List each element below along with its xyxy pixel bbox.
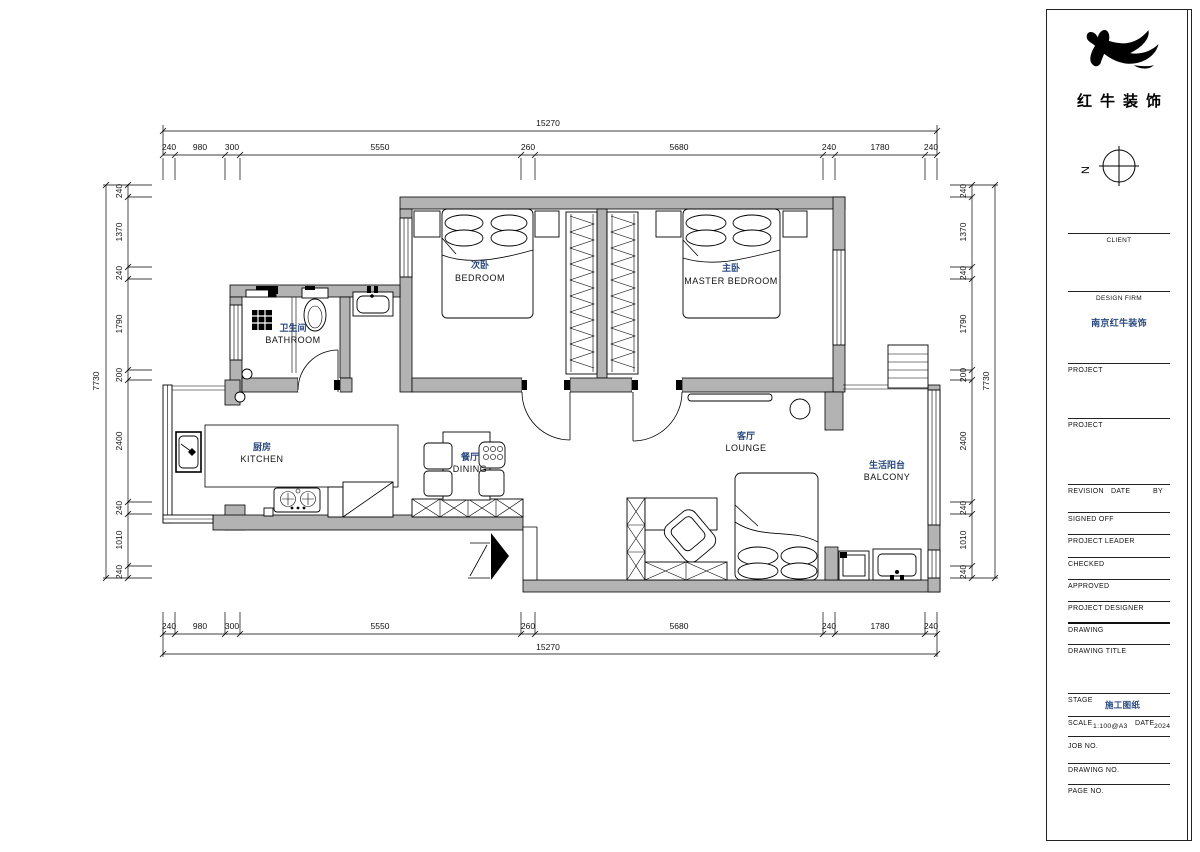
washing-machine-icon: [839, 551, 869, 580]
dim-label: 240: [114, 184, 124, 198]
room-label-bedroom2-zh: 次卧: [471, 259, 489, 270]
date2-label: DATE: [1135, 720, 1154, 727]
dim-label: 240: [958, 501, 968, 515]
dim-label: 7730: [981, 371, 991, 390]
door-bedroom2: [522, 378, 570, 440]
window-icon: [928, 390, 940, 525]
divider: [1068, 644, 1170, 645]
room-label-master-zh: 主卧: [722, 262, 740, 273]
bedroom2-furniture: [414, 209, 597, 374]
dim-label: 300: [225, 621, 239, 631]
north-arrow-icon: N: [1079, 140, 1149, 192]
divider: [1068, 291, 1170, 292]
nightstand-icon: [535, 211, 559, 237]
approved-label: APPROVED: [1068, 583, 1109, 590]
dim-label: 240: [958, 565, 968, 579]
divider: [1068, 484, 1170, 485]
project-designer-label: PROJECT DESIGNER: [1068, 605, 1144, 612]
client-label: CLIENT: [1047, 237, 1191, 244]
dim-label: 240: [958, 266, 968, 280]
divider: [1068, 363, 1170, 364]
project-leader-label: PROJECT LEADER: [1068, 538, 1135, 545]
floor-drain-icon: [252, 310, 272, 330]
laundry-sink-icon: [873, 549, 921, 580]
drawing-no-label: DRAWING NO.: [1068, 767, 1119, 774]
dim-label: 1790: [958, 314, 968, 333]
divider: [1068, 579, 1170, 580]
dim-label: 240: [924, 621, 938, 631]
dim-label: 200: [958, 368, 968, 382]
dim-label: 1780: [871, 142, 890, 152]
dim-label: 1010: [958, 530, 968, 549]
dim-label: 15270: [536, 642, 560, 652]
entry-opening: [523, 527, 537, 580]
closet-icon: [607, 212, 638, 374]
divider-thick: [1068, 622, 1170, 624]
divider: [1068, 763, 1170, 764]
door-master: [632, 378, 682, 441]
room-label-balcony-en: BALCONY: [864, 472, 911, 482]
divider: [1068, 601, 1170, 602]
dimension-left: 7730 240 1370 240 1790 200 2400 240 1010…: [91, 182, 152, 581]
shelf-icon: [246, 290, 276, 297]
divider: [1068, 784, 1170, 785]
by-label: BY: [1153, 488, 1163, 495]
dim-label: 240: [114, 266, 124, 280]
project2-label: PROJECT: [1068, 422, 1103, 429]
dining-furniture: [412, 432, 523, 517]
job-no-label: JOB NO.: [1068, 743, 1098, 750]
dim-label: 980: [193, 142, 207, 152]
divider: [1068, 693, 1170, 694]
page-no-label: PAGE NO.: [1068, 788, 1104, 795]
divider: [1068, 418, 1170, 419]
dim-label: 5550: [371, 142, 390, 152]
revision-label: REVISION: [1068, 488, 1104, 495]
dim-label: 260: [521, 142, 535, 152]
dim-label: 240: [822, 621, 836, 631]
drawing-sheet: 15270 240 980 300 5550 260 5680 240 1780…: [0, 0, 1200, 852]
dim-label: 240: [822, 142, 836, 152]
divider: [1068, 534, 1170, 535]
kitchen-zone: [205, 425, 398, 487]
signed-off-label: SIGNED OFF: [1068, 516, 1114, 523]
scale-value: 1:100@A3: [1093, 723, 1128, 730]
dim-label: 1370: [114, 222, 124, 241]
date-value: 2024: [1154, 723, 1170, 730]
pipe-icon: [235, 392, 245, 402]
stove-icon: [274, 488, 320, 512]
room-label-lounge-zh: 客厅: [736, 430, 755, 441]
drying-rack-icon: [888, 345, 928, 388]
door-bathroom: [298, 350, 340, 392]
room-label-dining-en: DINING: [453, 464, 488, 474]
design-firm-value: 南京红牛装饰: [1047, 316, 1191, 329]
tv-icon: [688, 394, 772, 401]
date-label: DATE: [1111, 488, 1130, 495]
title-block: 红牛装饰 N CLIENT DESIGN FIRM 南京红牛装饰 PROJECT…: [1046, 9, 1192, 841]
title-block-inner-border: [1187, 10, 1188, 840]
window-icon: [230, 305, 242, 360]
scale-label: SCALE: [1068, 720, 1092, 727]
floor-plan: 15270 240 980 300 5550 260 5680 240 1780…: [0, 0, 1200, 852]
divider: [1068, 557, 1170, 558]
dim-label: 980: [193, 621, 207, 631]
dim-label: 300: [225, 142, 239, 152]
dim-label: 1780: [871, 621, 890, 631]
daybed-icon: [735, 473, 818, 580]
window-icon: [833, 250, 845, 345]
dim-label: 1010: [114, 530, 124, 549]
window-icon: [928, 550, 940, 578]
dim-label: 240: [162, 142, 176, 152]
room-label-bathroom-zh: 卫生间: [279, 322, 306, 333]
lounge-furniture: [627, 473, 818, 580]
logo-text: 红牛装饰: [1047, 90, 1191, 111]
divider: [1068, 716, 1170, 717]
pipe-icon: [242, 369, 252, 379]
nightstand-icon: [783, 211, 807, 237]
dimension-top: 15270 240 980 300 5550 260 5680 240 1780…: [160, 118, 940, 180]
divider: [1068, 512, 1170, 513]
dim-label: 2400: [958, 431, 968, 450]
tall-cabinet-icon: [627, 498, 645, 580]
project1-label: PROJECT: [1068, 367, 1103, 374]
dim-label: 15270: [536, 118, 560, 128]
divider: [1068, 233, 1170, 234]
dim-label: 240: [924, 142, 938, 152]
nightstand-icon: [656, 211, 681, 237]
entry-arrow-icon: [468, 533, 509, 580]
dim-label: 240: [162, 621, 176, 631]
room-label-balcony-zh: 生活阳台: [869, 459, 905, 470]
shoe-cabinet-icon: [412, 499, 523, 517]
dim-label: 5680: [670, 142, 689, 152]
dim-label: 260: [521, 621, 535, 631]
nightstand-icon: [414, 211, 440, 237]
dim-label: 200: [114, 368, 124, 382]
kitchen-sink-icon: [176, 432, 201, 472]
dim-label: 5550: [371, 621, 390, 631]
room-label-kitchen-zh: 厨房: [253, 441, 271, 452]
north-label: N: [1080, 166, 1092, 174]
dim-label: 240: [114, 565, 124, 579]
cabinet-icon: [328, 487, 343, 517]
drawing-title-label: DRAWING TITLE: [1068, 648, 1126, 655]
divider: [1068, 736, 1170, 737]
room-label-lounge-en: LOUNGE: [725, 443, 766, 453]
logo-icon: [1073, 24, 1165, 86]
dimension-right: 7730 240 1370 240 1790 200 2400 240 1010…: [950, 182, 998, 581]
fridge-icon: [343, 482, 393, 517]
dim-label: 240: [114, 501, 124, 515]
dim-label: 1790: [114, 314, 124, 333]
kitchen-fixtures: [176, 425, 398, 517]
room-label-bedroom2-en: BEDROOM: [455, 273, 505, 283]
ceiling-lamp-icon: [790, 399, 810, 419]
drawing-label: DRAWING: [1068, 627, 1104, 634]
room-label-dining-zh: 餐厅: [460, 451, 479, 462]
window-icon: [400, 218, 412, 277]
dim-label: 2400: [114, 431, 124, 450]
stage-label: STAGE: [1068, 697, 1093, 704]
dim-label: 1370: [958, 222, 968, 241]
checked-label: CHECKED: [1068, 561, 1104, 568]
chair-icon: [424, 471, 452, 496]
chair-icon: [424, 443, 452, 469]
dim-label: 240: [958, 184, 968, 198]
dim-label: 7730: [91, 371, 101, 390]
room-label-bathroom-en: BATHROOM: [265, 335, 320, 345]
design-firm-label: DESIGN FIRM: [1047, 295, 1191, 302]
room-label-master-en: MASTER BEDROOM: [684, 276, 778, 286]
room-label-kitchen-en: KITCHEN: [240, 454, 283, 464]
dimension-bottom: 15270 240 980 300 5550 260 5680 240 1780…: [160, 612, 940, 657]
dim-label: 5680: [670, 621, 689, 631]
tv-cabinet-icon: [645, 562, 727, 580]
closet-icon: [566, 212, 597, 374]
wall-box-icon: [264, 508, 273, 516]
stage-value: 施工图纸: [1105, 699, 1140, 711]
